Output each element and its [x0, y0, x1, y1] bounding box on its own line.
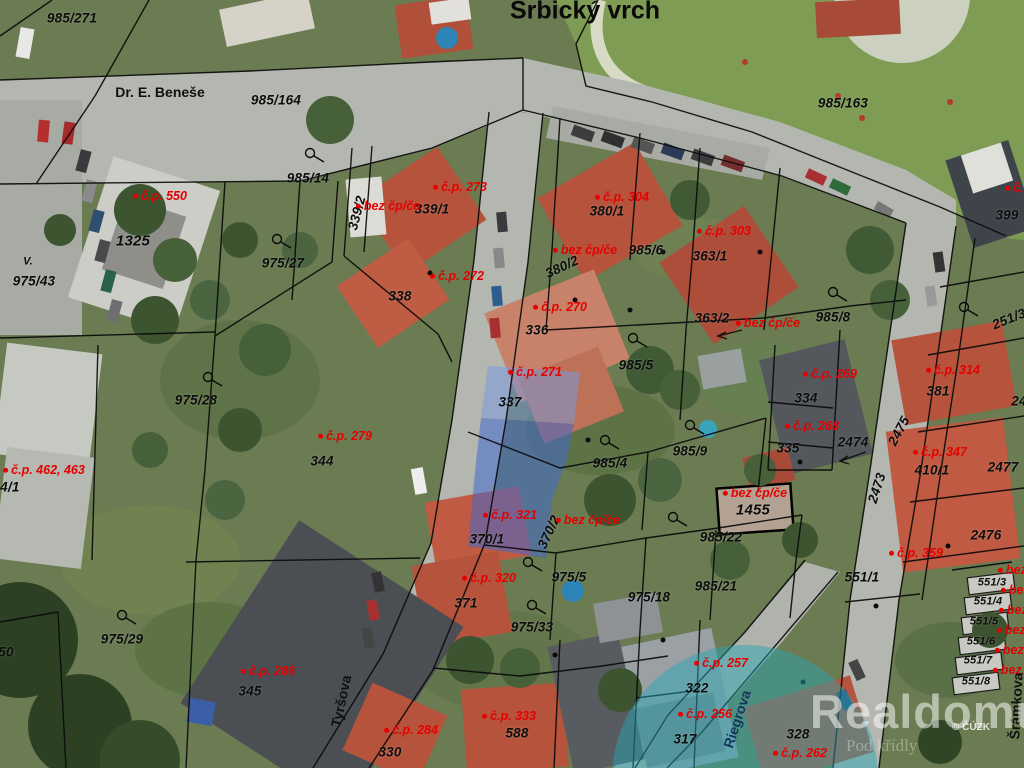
aerial-photo-layer	[0, 0, 1024, 768]
pool	[436, 27, 458, 49]
copyright-badge: © ČÚZK	[952, 722, 990, 733]
aerial-cadastral-map: Srbický vrch 985/271985/164985/163985/14…	[0, 0, 1024, 768]
pool	[562, 580, 584, 602]
watermark-tagline: Pod křídly	[846, 736, 917, 756]
watermark-brand: Realdomus	[810, 684, 1024, 739]
